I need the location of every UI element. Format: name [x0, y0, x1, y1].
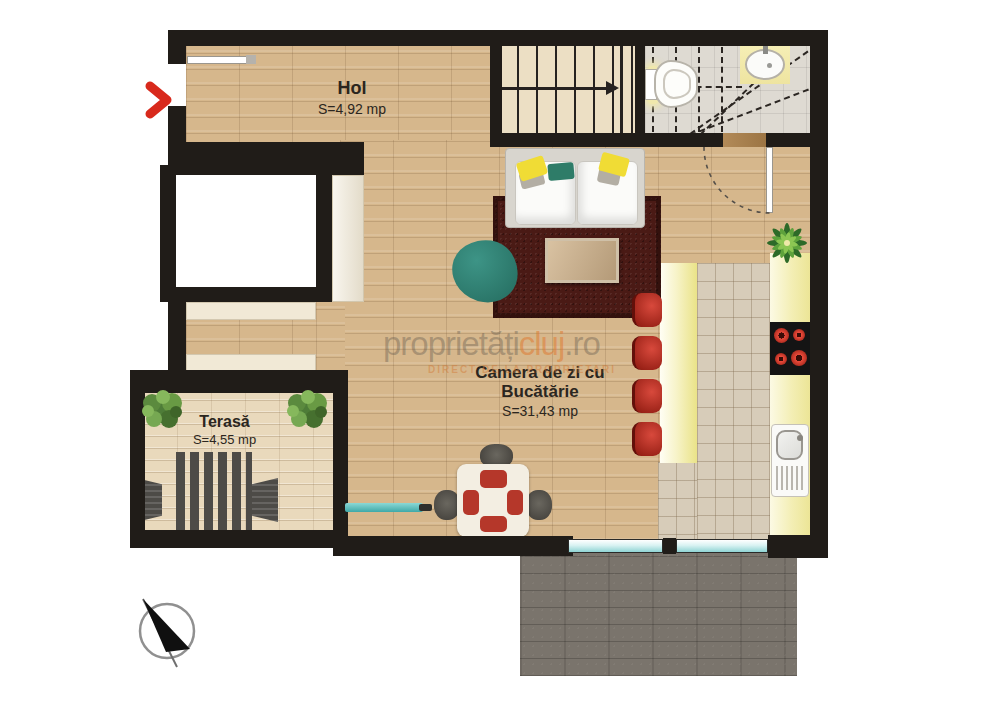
watermark: proprietățicluj.ro: [383, 325, 600, 363]
watermark-part2: cluj: [519, 325, 565, 362]
hol-name: Hol: [292, 78, 412, 99]
living-area: S=31,43 mp: [455, 403, 625, 419]
floor-plan: Hol S=4,92 mp Camera de zi cu Bucătărie …: [0, 0, 1000, 705]
watermark-tagline: DIRECT DE LA PROPRIETARI: [428, 364, 616, 375]
entrance-arrow-icon: [150, 86, 167, 114]
terrace-label: Terasă S=4,55 mp: [152, 413, 297, 448]
door-swing-arc: [704, 147, 770, 213]
hol-area: S=4,92 mp: [292, 101, 412, 117]
terrace-name: Terasă: [152, 413, 297, 431]
north-arrow-icon: [140, 599, 194, 667]
kitchen-plant: [767, 223, 807, 263]
living-name-line2: Bucătărie: [455, 382, 625, 401]
hol-label: Hol S=4,92 mp: [292, 78, 412, 117]
terrace-area: S=4,55 mp: [152, 433, 297, 448]
watermark-part1: proprietăți: [383, 325, 519, 362]
watermark-part3: .ro: [564, 325, 600, 362]
